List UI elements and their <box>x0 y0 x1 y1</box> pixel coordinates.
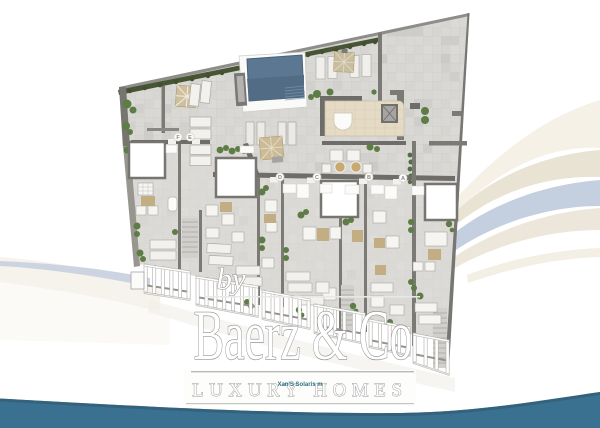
svg-text:D: D <box>278 175 282 181</box>
svg-text:E: E <box>188 135 192 141</box>
svg-text:C: C <box>315 175 319 181</box>
svg-text:Xan'S Solaris m: Xan'S Solaris m <box>277 382 322 388</box>
svg-text:A: A <box>401 176 405 182</box>
svg-text:Baerz & Co: Baerz & Co <box>194 296 413 374</box>
svg-text:B: B <box>367 175 371 181</box>
svg-text:by: by <box>216 261 246 296</box>
